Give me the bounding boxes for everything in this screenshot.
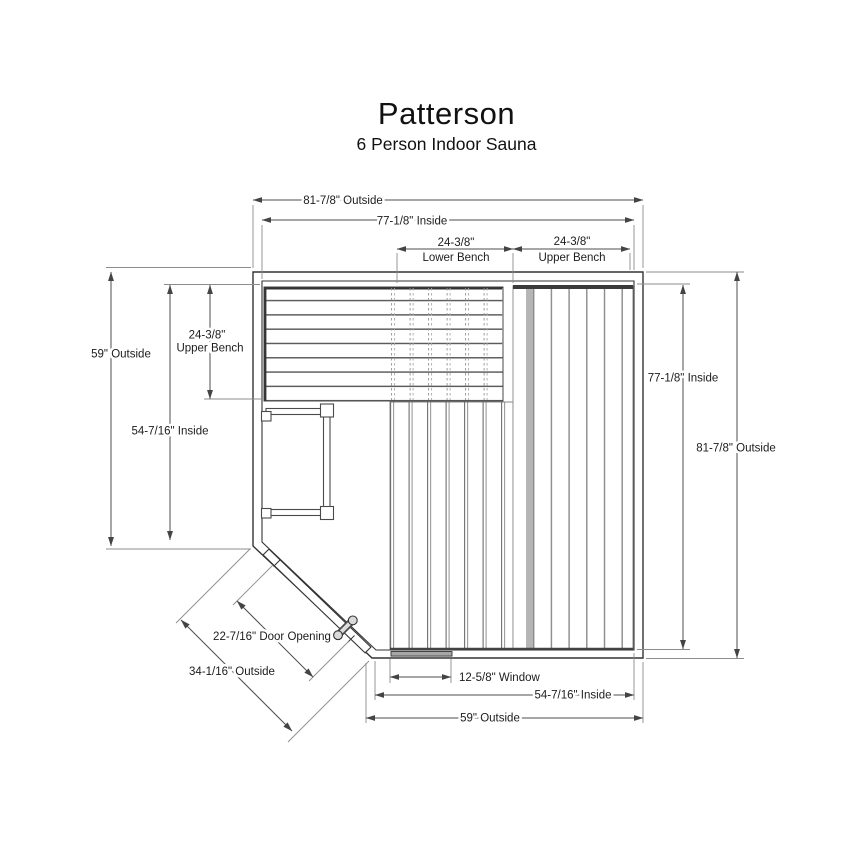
dim-right-outside: 81-7/8" Outside — [696, 443, 776, 455]
dim-upper-bench-left-value: 24-3/8" — [189, 330, 226, 342]
dim-lower-bench-label: Lower Bench — [422, 252, 489, 264]
floor-plan-drawing: 81-7/8" Outside 77-1/8" Inside 24-3/8" L… — [0, 0, 861, 861]
dim-upper-bench-left-label: Upper Bench — [176, 343, 243, 355]
upper-bench-right-boards — [527, 286, 633, 649]
frame-top-rail — [266, 409, 323, 415]
frame-wall-post — [262, 412, 272, 422]
frame-bottom-rail — [266, 510, 323, 516]
frame-wall-post — [262, 509, 272, 519]
bench-edge-board — [527, 286, 533, 649]
dim-upper-bench-top-value: 24-3/8" — [554, 236, 591, 248]
dim-left-inside: 54-7/16" Inside — [132, 426, 209, 438]
dim-top-outside: 81-7/8" Outside — [303, 195, 383, 207]
dim-door-opening: 22-7/16" Door Opening — [213, 631, 331, 643]
dim-right-inside: 77-1/8" Inside — [648, 373, 719, 385]
lower-bench-hidden-boards — [391, 288, 503, 400]
dim-lower-bench-value: 24-3/8" — [438, 237, 475, 249]
bench-seam — [513, 286, 527, 649]
window — [391, 652, 452, 657]
dim-bottom-inside: 54-7/16" Inside — [535, 690, 612, 702]
dim-left-outside: 59" Outside — [91, 349, 151, 361]
dim-corner-outside: 34-1/16" Outside — [189, 666, 275, 678]
frame-post — [321, 404, 334, 417]
frame-right-rail — [324, 416, 331, 511]
sauna-floor-plan-page: Patterson 6 Person Indoor Sauna — [0, 0, 861, 861]
frame-post — [321, 507, 334, 520]
dim-bottom-outside: 59" Outside — [460, 713, 520, 725]
dim-upper-bench-top-label: Upper Bench — [538, 252, 605, 264]
lower-bench — [390, 288, 513, 649]
dim-top-inside: 77-1/8" Inside — [377, 216, 448, 228]
lower-bench-boards — [390, 402, 513, 649]
dim-window: 12-5/8" Window — [459, 672, 540, 684]
bench-top-edge — [513, 285, 633, 289]
